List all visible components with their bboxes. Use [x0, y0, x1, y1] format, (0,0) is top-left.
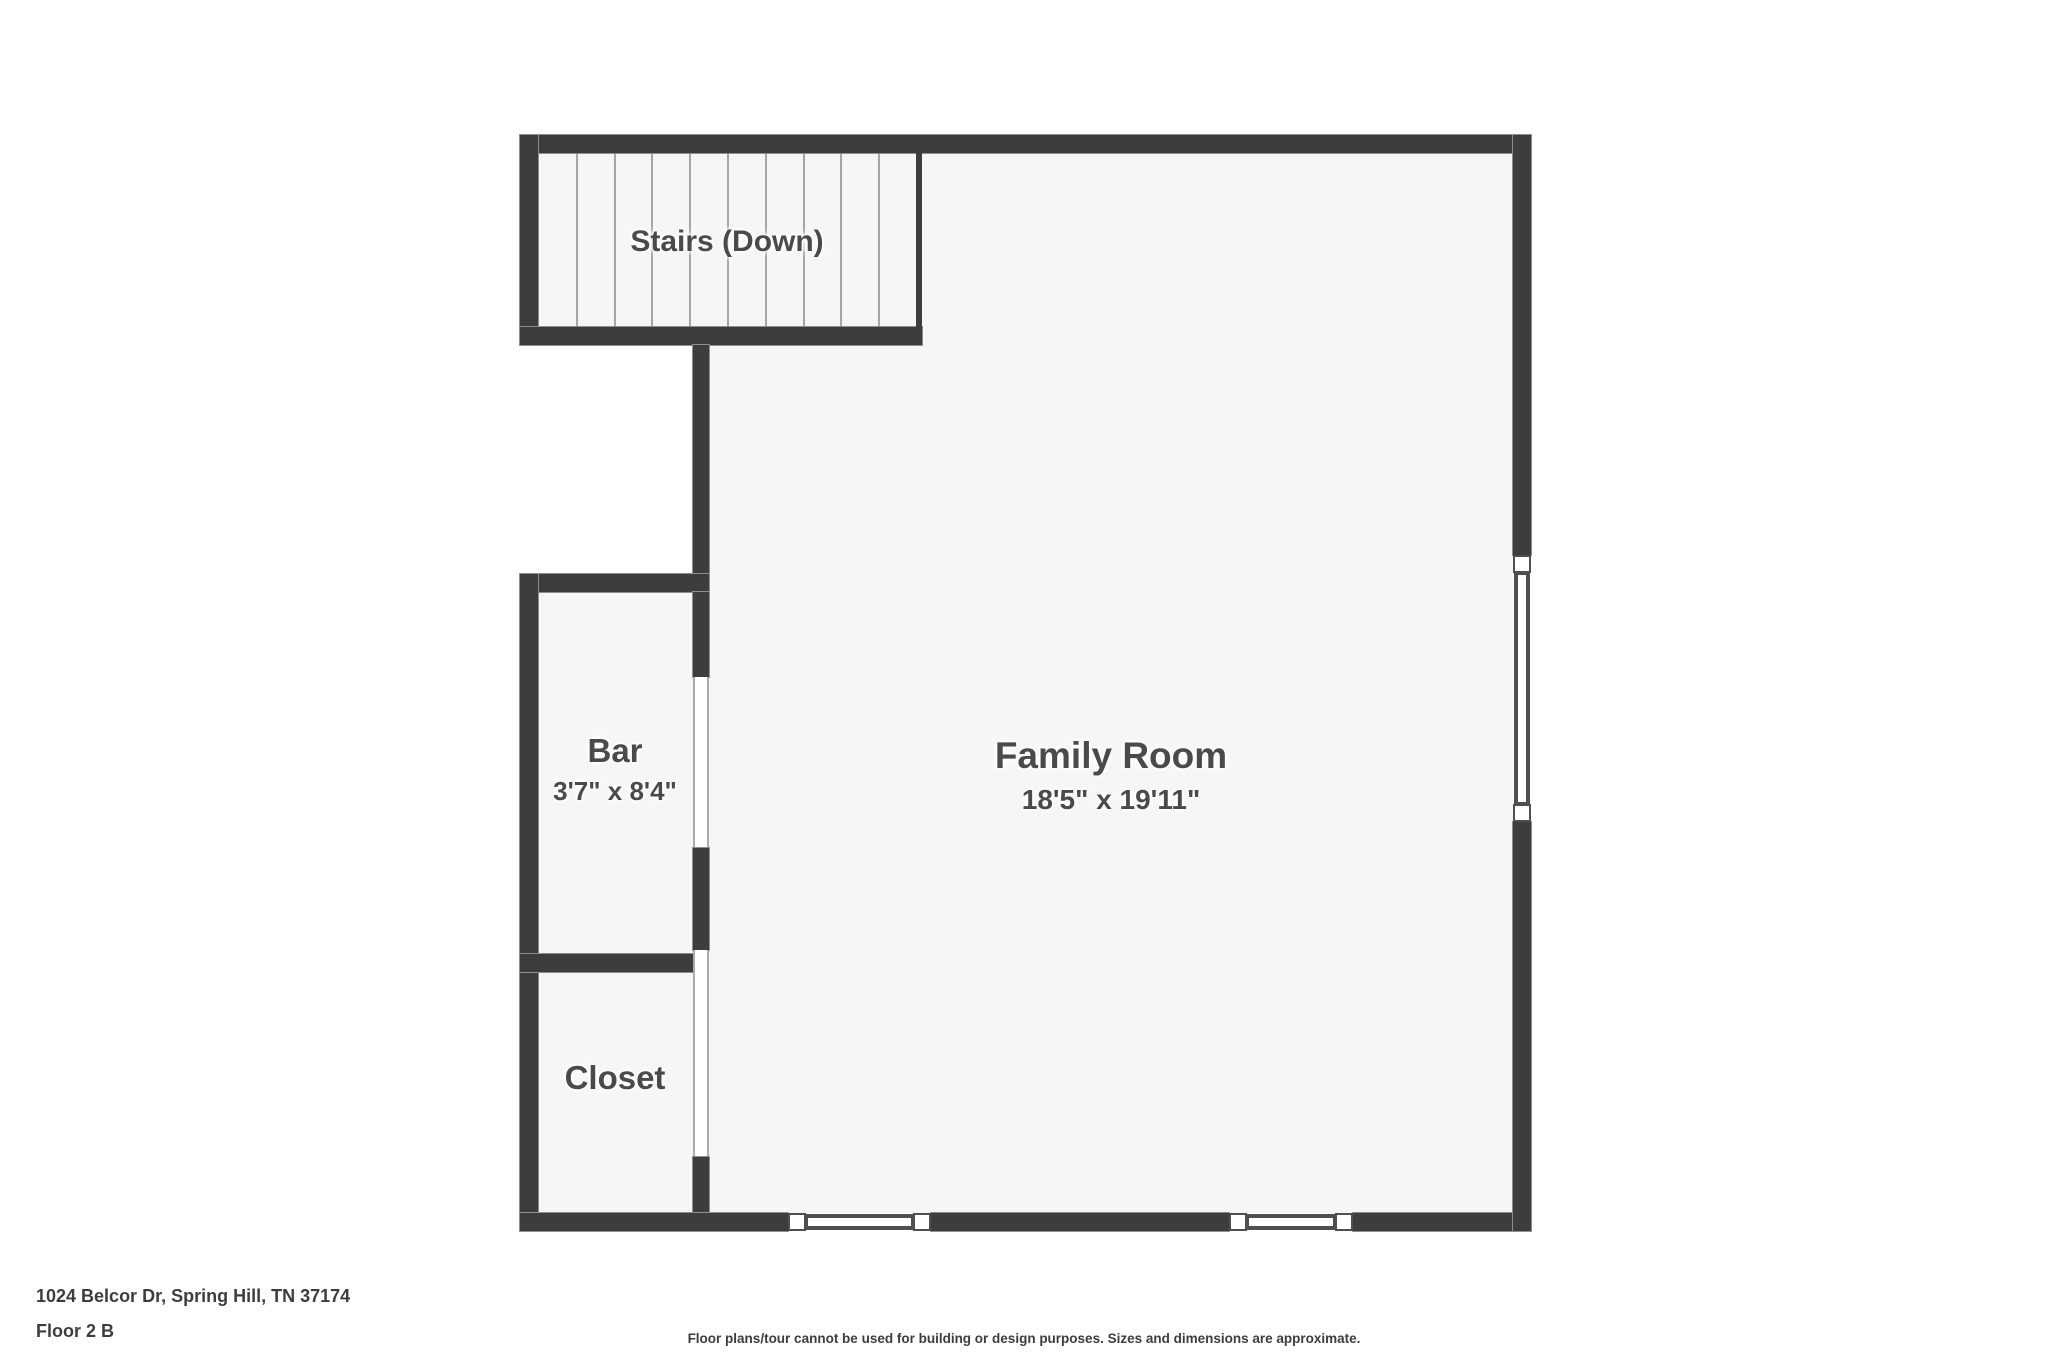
family-room-label: Family Room 18'5" x 19'11": [995, 736, 1227, 815]
room-name: Closet: [565, 1060, 666, 1096]
wall-bar-top: [520, 574, 709, 592]
window-icon: [1335, 1213, 1353, 1231]
wall-exterior-bottom-middle: [931, 1213, 1229, 1231]
window-mullion: [1516, 573, 1528, 804]
floor-plan-canvas: Stairs (Down) Family Room 18'5" x 19'11"…: [0, 0, 2048, 1365]
window-mullion: [1247, 1216, 1335, 1228]
stair-tread-line: [878, 153, 880, 327]
stair-tread-line: [614, 153, 616, 327]
address-text: 1024 Belcor Dr, Spring Hill, TN 37174: [36, 1286, 350, 1307]
window-icon: [1229, 1213, 1247, 1231]
window-mullion: [806, 1216, 913, 1228]
wall-exterior-bottom-right: [1353, 1213, 1531, 1231]
room-dimensions: 3'7" x 8'4": [553, 777, 677, 806]
wall-mid-vertical-upper: [693, 345, 709, 592]
disclaimer-text: Floor plans/tour cannot be used for buil…: [0, 1331, 2048, 1346]
window-icon: [1514, 573, 1530, 804]
stair-tread-line: [576, 153, 578, 327]
window-icon: [913, 1213, 931, 1231]
wall-exterior-right-lower: [1513, 822, 1531, 1231]
closet-room-label: Closet: [565, 1060, 666, 1096]
stairs-room-label: Stairs (Down): [630, 225, 823, 258]
wall-exterior-bottom-left: [520, 1213, 788, 1231]
wall-bar-family-upper: [693, 592, 709, 677]
room-name: Family Room: [995, 736, 1227, 777]
window-icon: [1513, 555, 1531, 573]
window-icon: [1247, 1214, 1335, 1230]
room-name: Stairs (Down): [630, 225, 823, 258]
window-icon: [1513, 804, 1531, 822]
wall-exterior-left-upper: [520, 135, 538, 345]
wall-exterior-top: [520, 135, 1531, 153]
room-dimensions: 18'5" x 19'11": [995, 785, 1227, 816]
bar-door-opening: [693, 677, 709, 848]
wall-exterior-left-lower: [520, 574, 538, 1231]
room-name: Bar: [553, 733, 677, 769]
closet-door-opening: [693, 950, 709, 1157]
wall-bar-family-lower: [693, 848, 709, 950]
wall-exterior-right-upper: [1513, 135, 1531, 555]
window-icon: [788, 1213, 806, 1231]
bar-room-label: Bar 3'7" x 8'4": [553, 733, 677, 806]
wall-bar-closet-divider: [520, 954, 693, 972]
wall-stairs-right-thin: [916, 153, 922, 327]
stair-tread-line: [840, 153, 842, 327]
wall-stairs-bottom: [520, 327, 922, 345]
window-icon: [806, 1214, 913, 1230]
